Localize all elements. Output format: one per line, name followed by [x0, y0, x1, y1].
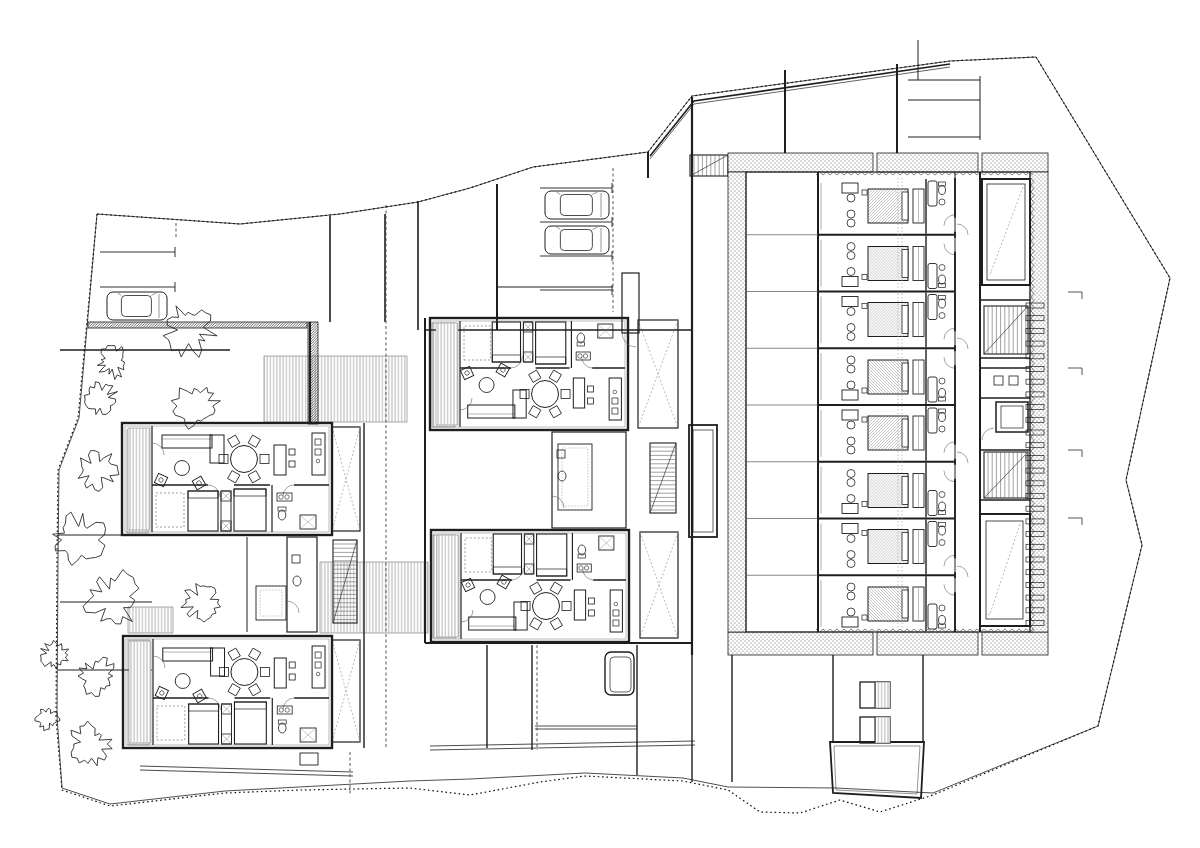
- site-plan-drawing: [0, 0, 1200, 848]
- plan-canvas: [0, 0, 1200, 848]
